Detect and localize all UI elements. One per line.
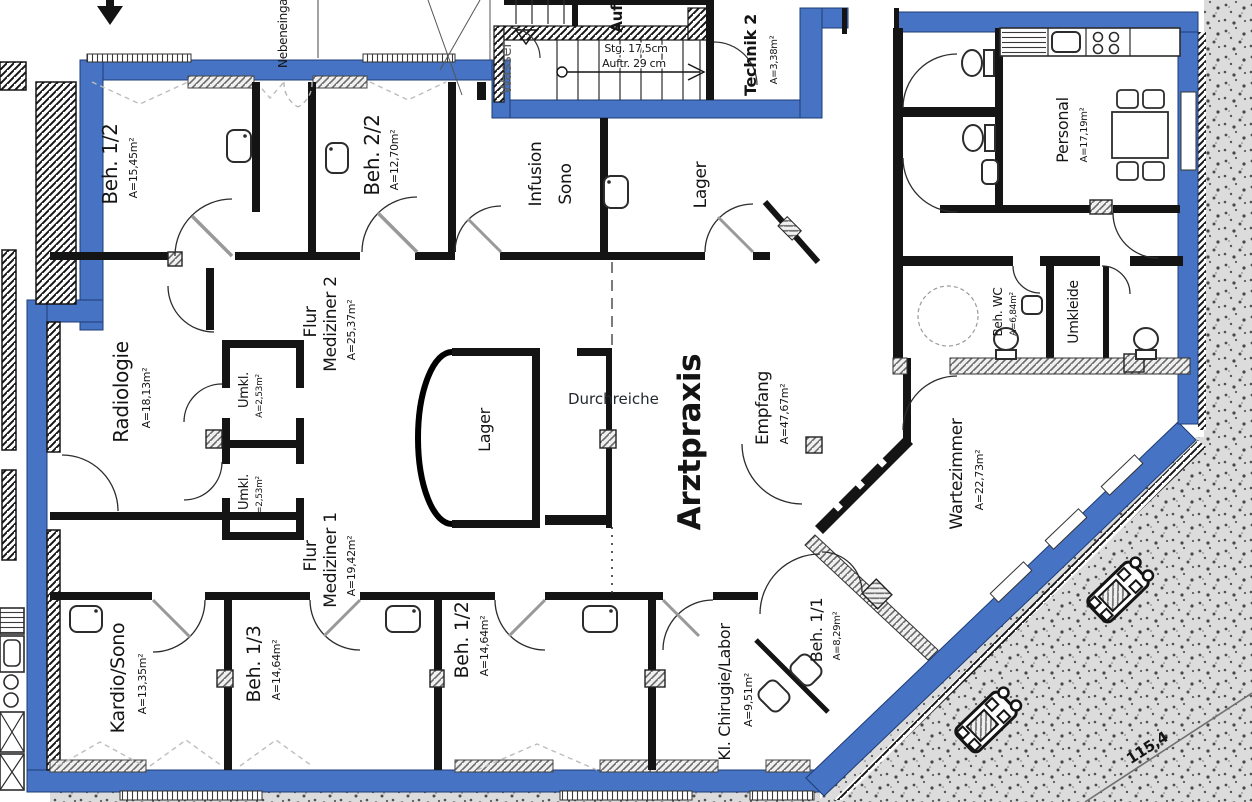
sink-icon [326, 143, 348, 173]
toilet-tank [1136, 350, 1156, 359]
room-label-beh13: Beh. 1/3 [243, 625, 265, 702]
room-area-beh22: A=12,70m² [388, 130, 401, 191]
sink-icon [1022, 296, 1042, 314]
sink-icon [982, 160, 998, 184]
table-icon [1112, 112, 1168, 158]
room-label-behwc: Beh. WC [991, 288, 1005, 337]
room-area-behwc: A=6,84m² [1009, 291, 1019, 335]
room-area-technik: A=3,38m² [769, 35, 780, 84]
room-area-umkl1: A=2,53m² [255, 373, 265, 417]
curved-door [418, 352, 452, 524]
chair-icon [1143, 162, 1164, 180]
room-area-umkl2: A=2,53m² [255, 475, 265, 519]
toilet-tank [985, 125, 995, 151]
floorplan-canvas: 115,4 [0, 0, 1252, 802]
nebeneingang-label: Nebeneingang [276, 0, 290, 68]
room-label-empfang: Empfang [753, 371, 773, 445]
room-label-flur2-a: Flur [301, 306, 321, 337]
entrance-arrow-icon [97, 0, 123, 25]
room-label-lager-top: Lager [691, 161, 711, 208]
room-label-arztpraxis: Arztpraxis [672, 354, 708, 531]
room-label-umkl2: Umkl. [237, 474, 252, 510]
wasser-label: Wasser [497, 41, 515, 94]
room-label-chirurgie: Kl. Chirugie/Labor [715, 623, 734, 761]
floorplan-page: 115,4 [0, 0, 1252, 802]
toilet-tank [984, 50, 994, 76]
toilet-tank [996, 350, 1016, 359]
kitchen-counter [1000, 28, 1180, 56]
room-area-beh13: A=14,64m² [270, 640, 283, 701]
toilet-icon [962, 50, 982, 76]
room-label-beh12-unten: Beh. 1/2 [451, 601, 473, 678]
entry-swing-arcs [284, 82, 312, 107]
room-label-personal: Personal [1053, 97, 1072, 163]
room-area-chirurgie: A=9,51m² [742, 673, 755, 727]
upper-flight-lines [428, 0, 490, 95]
room-label-wartezimmer: Wartezimmer [947, 418, 967, 529]
turning-circle [918, 286, 978, 346]
kitchen-sink-icon [1052, 32, 1080, 52]
room-label-flur1-a: Flur [301, 540, 321, 571]
neighbour-fixtures [0, 608, 24, 790]
room-label-beh12-top: Beh. 1/2 [98, 123, 122, 204]
room-area-flur1: A=19,42m² [345, 536, 358, 597]
room-area-personal: A=17,19m² [1079, 107, 1090, 162]
room-area-kardio: A=13,35m² [136, 654, 149, 715]
room-label-sono: Sono [556, 163, 576, 204]
room-label-flur2-b: Mediziner 2 [321, 276, 341, 371]
stair-dim-line2: Auftr. 29 cm [602, 57, 666, 70]
room-label-beh22: Beh. 2/2 [360, 114, 384, 195]
chair-icon [1117, 90, 1138, 108]
room-label-beh11: Beh. 1/1 [807, 598, 826, 662]
room-label-lager-mitte: Lager [475, 407, 494, 452]
chair-icon [1117, 162, 1138, 180]
room-label-infus: Infusion [526, 142, 546, 207]
toilet-icon [1134, 328, 1158, 350]
durchreiche-label: Durchreiche [568, 390, 659, 408]
toilet-icon [963, 125, 983, 151]
room-area-beh11: A=8,29m² [832, 611, 843, 660]
room-label-technik: Technik 2 [741, 14, 760, 96]
room-area-empfang: A=47,67m² [778, 384, 791, 445]
room-label-radiologie: Radiologie [109, 341, 133, 443]
chair-icon [1143, 90, 1164, 108]
dining-table [1112, 90, 1168, 180]
room-area-wartezimmer: A=22,73m² [973, 450, 986, 511]
sink-icon [756, 678, 793, 715]
sink-icon [604, 176, 628, 208]
stair-dim-line1: Stg. 17,5cm [604, 42, 667, 55]
room-area-radiologie: A=18,13m² [140, 368, 153, 429]
sink-icon [227, 130, 251, 162]
room-area-beh12-top: A=15,45m² [127, 138, 140, 199]
staircase: Stg. 17,5cm Auftr. 29 cm Wasser Aufzug [428, 0, 757, 102]
room-label-umkl1: Umkl. [237, 372, 252, 408]
aufzug-label: Aufzug [608, 0, 626, 33]
room-area-beh12-unten: A=14,64m² [478, 616, 491, 677]
room-label-umkleide: Umkleide [1066, 280, 1082, 344]
room-label-flur1-b: Mediziner 1 [321, 512, 341, 607]
room-label-kardio: Kardio/Sono [107, 623, 129, 734]
room-area-flur2: A=25,37m² [345, 300, 358, 361]
